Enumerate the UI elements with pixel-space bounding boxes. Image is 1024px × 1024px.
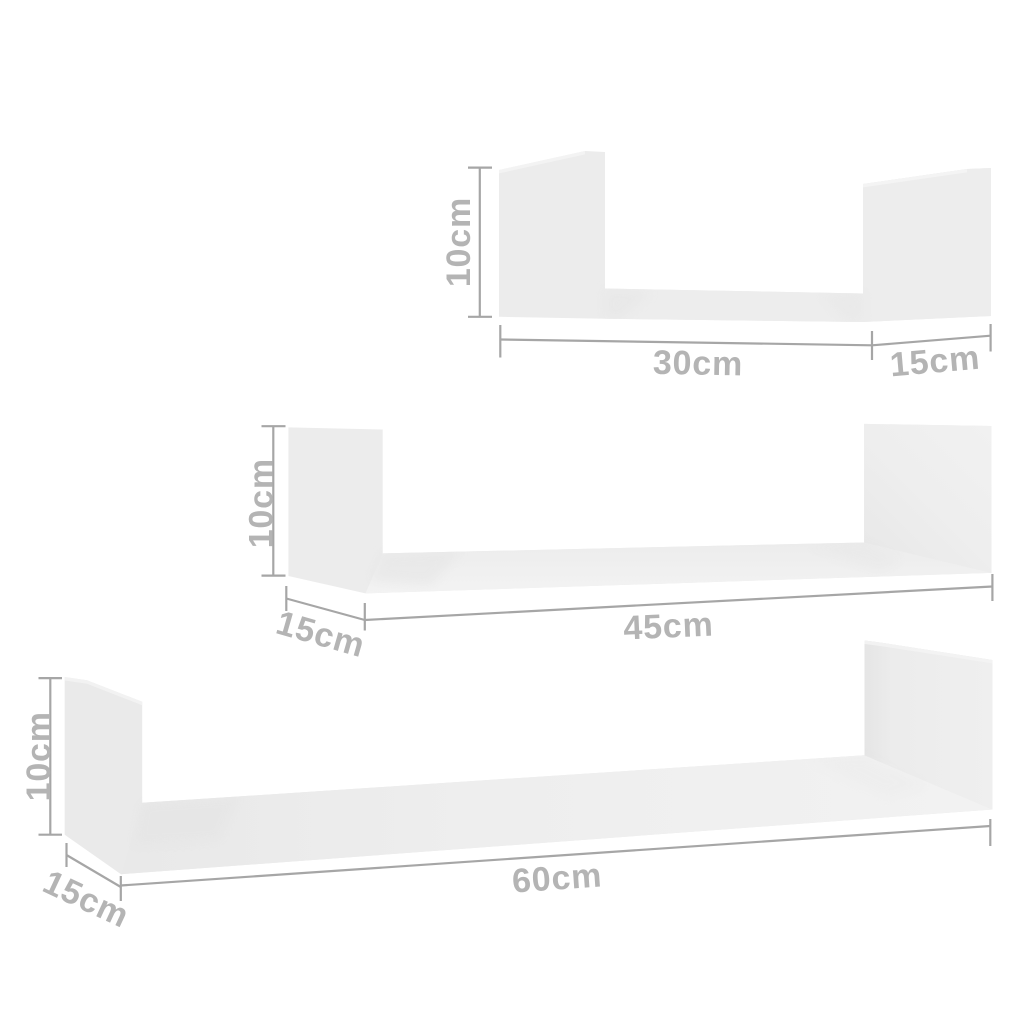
svg-text:60cm: 60cm (511, 856, 604, 900)
svg-text:15cm: 15cm (888, 339, 981, 385)
svg-text:10cm: 10cm (242, 458, 280, 548)
svg-text:30cm: 30cm (653, 344, 744, 384)
svg-text:15cm: 15cm (272, 604, 369, 665)
svg-text:45cm: 45cm (623, 606, 715, 648)
svg-text:10cm: 10cm (440, 197, 478, 287)
svg-text:10cm: 10cm (20, 711, 58, 801)
svg-text:15cm: 15cm (37, 863, 135, 936)
